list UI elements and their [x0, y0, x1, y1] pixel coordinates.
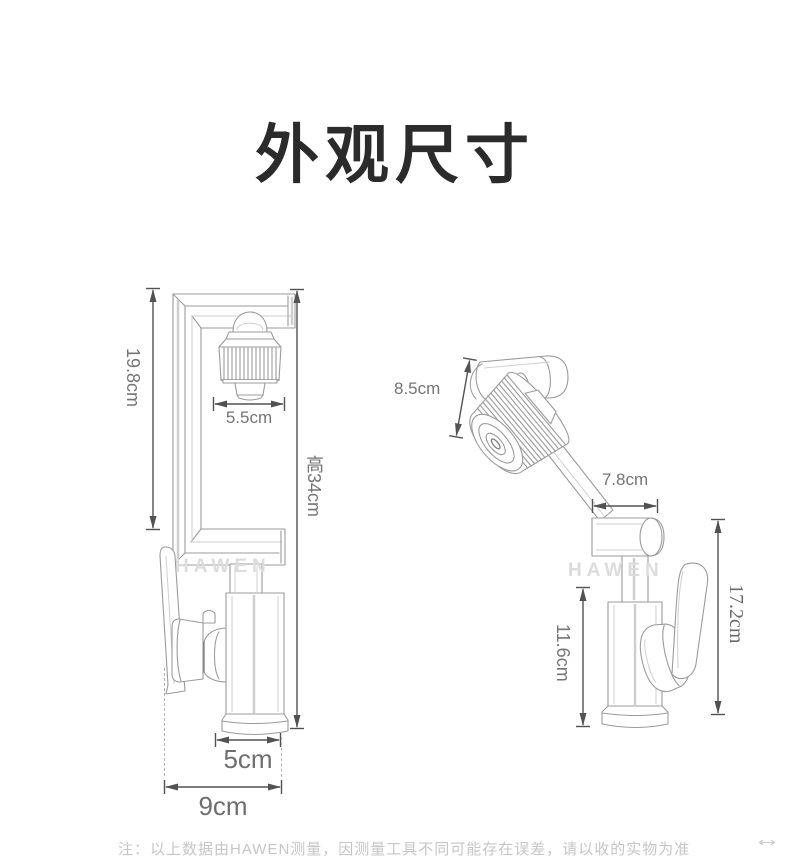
- page-title: 外观尺寸: [0, 104, 790, 196]
- extension-line-left: [164, 668, 165, 776]
- dim-label-swivel-arm-length: 7.8cm: [587, 470, 663, 490]
- dim-label-total-height-left: 高34cm: [301, 455, 327, 517]
- measurement-disclaimer-note: 注：以上数据由HAWEN测量，因测量工具不同可能存在误差，请以收的实物为准: [118, 838, 690, 857]
- horizontal-resize-icon[interactable]: ↔: [753, 826, 782, 852]
- dim-label-arm-height: 19.8cm: [122, 348, 143, 407]
- dim-arrow-arm-height: [145, 287, 161, 531]
- extension-line-right: [281, 737, 282, 777]
- brand-watermark-right: HAWEN: [568, 560, 664, 582]
- product-dimensions-page: 外观尺寸: [0, 0, 790, 857]
- brand-watermark-left: HAWEN: [175, 556, 271, 578]
- dim-arrow-body-height: [575, 586, 591, 728]
- dim-label-spray-head-length: 8.5cm: [394, 379, 440, 399]
- dim-label-spray-head-width: 5.5cm: [208, 408, 290, 428]
- dim-label-base-width: 5cm: [210, 744, 286, 775]
- dim-label-total-height-right: 17.2cm: [724, 584, 747, 643]
- dim-label-total-width: 9cm: [160, 791, 286, 822]
- dim-label-body-height: 11.6cm: [552, 624, 573, 682]
- dim-arrow-swivel-arm-length: [591, 498, 659, 514]
